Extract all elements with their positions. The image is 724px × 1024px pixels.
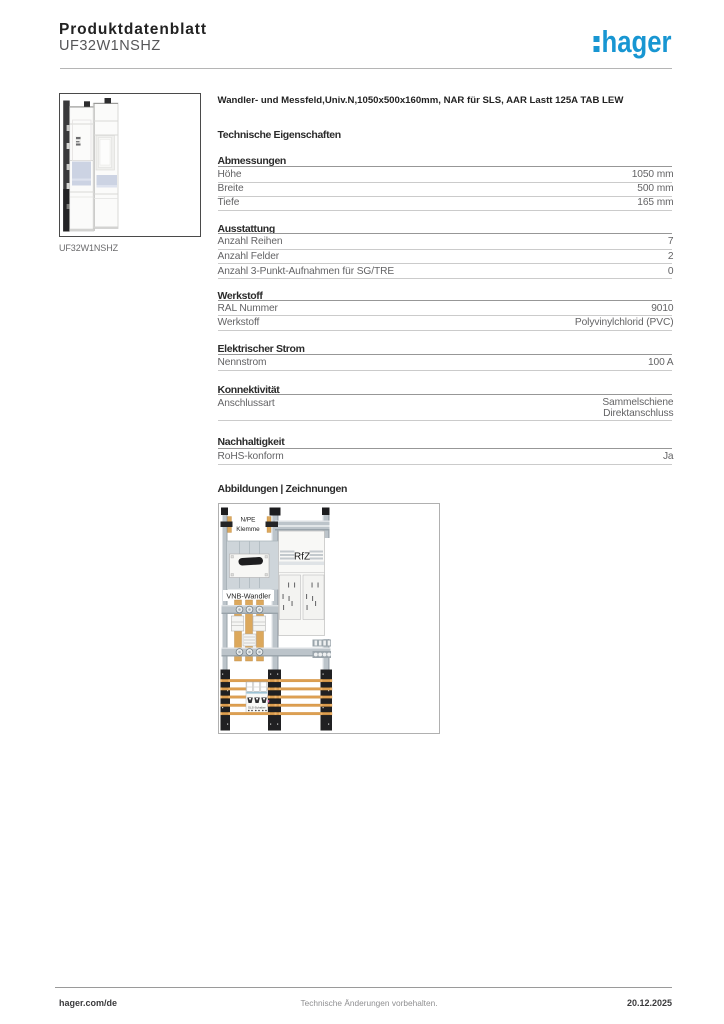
svg-text:RfZ: RfZ: [293, 551, 309, 562]
svg-text:hager: hager: [602, 26, 672, 59]
svg-text:SLS-Schalter: SLS-Schalter: [247, 705, 265, 709]
svg-text:N/PE: N/PE: [240, 516, 255, 523]
svg-text:VNB-Wandler: VNB-Wandler: [226, 591, 271, 600]
svg-text:Klemme: Klemme: [236, 526, 260, 533]
